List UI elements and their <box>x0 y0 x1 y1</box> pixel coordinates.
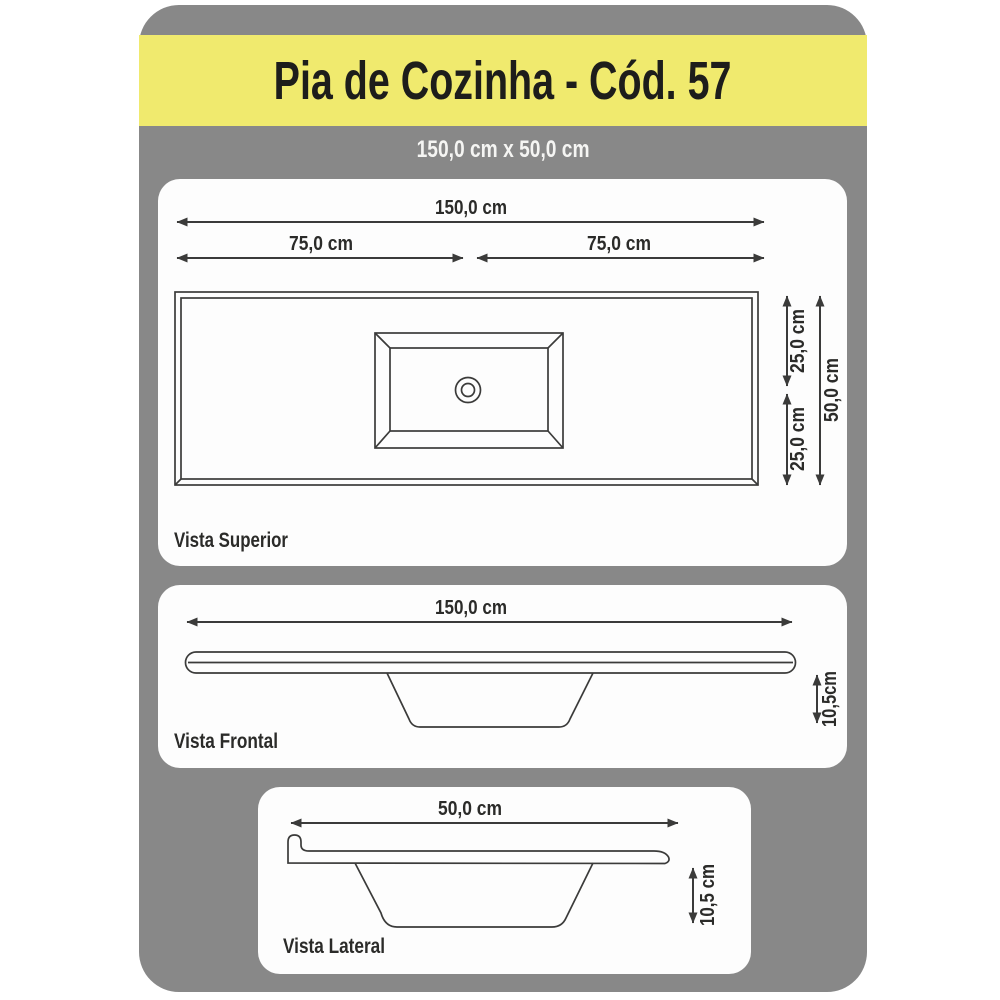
frontal-view-panel: 150,0 cm 10,5cm Vista Frontal <box>158 585 847 768</box>
frontal-view-drawing: 150,0 cm 10,5cm Vista Frontal <box>158 585 847 768</box>
superior-view-label: Vista Superior <box>174 529 288 552</box>
dimension-label-height: 10,5cm <box>819 671 841 727</box>
title-band: Pia de Cozinha - Cód. 57 <box>139 35 867 126</box>
countertop-outer-edge <box>175 292 758 485</box>
lateral-view-label: Vista Lateral <box>283 935 385 958</box>
spec-board: Pia de Cozinha - Cód. 57 150,0 cm x 50,0… <box>139 5 867 992</box>
dimension-label-depth-top: 25,0 cm <box>787 309 809 373</box>
superior-view-drawing: 150,0 cm 75,0 cm 75,0 cm <box>158 179 847 566</box>
dimension-label-depth-total: 50,0 cm <box>821 358 843 422</box>
countertop-inner-edge <box>181 298 752 479</box>
dimension-label-total-width: 150,0 cm <box>435 197 507 219</box>
lateral-view-panel: 50,0 cm 10,5 cm Vista Lateral <box>258 787 751 974</box>
drain-outer-circle <box>456 378 481 403</box>
basin-bevel-top-left <box>375 333 390 348</box>
dimension-label-half-left: 75,0 cm <box>289 233 353 255</box>
drain-inner-circle <box>462 384 475 397</box>
dimension-label-depth-bottom: 25,0 cm <box>787 407 809 471</box>
frontal-view-label: Vista Frontal <box>174 730 278 753</box>
basin-bevel-top-right <box>548 333 563 348</box>
superior-view-panel: 150,0 cm 75,0 cm 75,0 cm <box>158 179 847 566</box>
page-background: Pia de Cozinha - Cód. 57 150,0 cm x 50,0… <box>0 0 1000 1000</box>
product-title: Pia de Cozinha - Cód. 57 <box>274 50 732 112</box>
dimension-label-depth: 50,0 cm <box>438 798 502 820</box>
slab-side-profile <box>288 835 669 864</box>
dimension-label-width: 150,0 cm <box>435 597 507 619</box>
overall-dimensions: 150,0 cm x 50,0 cm <box>139 133 867 167</box>
basin-bevel-bottom-right <box>548 431 563 448</box>
dimension-label-height: 10,5 cm <box>697 864 719 926</box>
lateral-view-drawing: 50,0 cm 10,5 cm Vista Lateral <box>258 787 751 974</box>
countertop-miter-bottom-right <box>752 479 758 485</box>
basin-profile <box>387 673 593 727</box>
basin-inner-rim <box>390 348 548 431</box>
countertop-miter-bottom-left <box>175 479 181 485</box>
dimension-label-half-right: 75,0 cm <box>587 233 651 255</box>
overall-dimensions-text: 150,0 cm x 50,0 cm <box>417 136 590 164</box>
basin-side-profile <box>355 863 593 927</box>
basin-bevel-bottom-left <box>375 431 390 448</box>
